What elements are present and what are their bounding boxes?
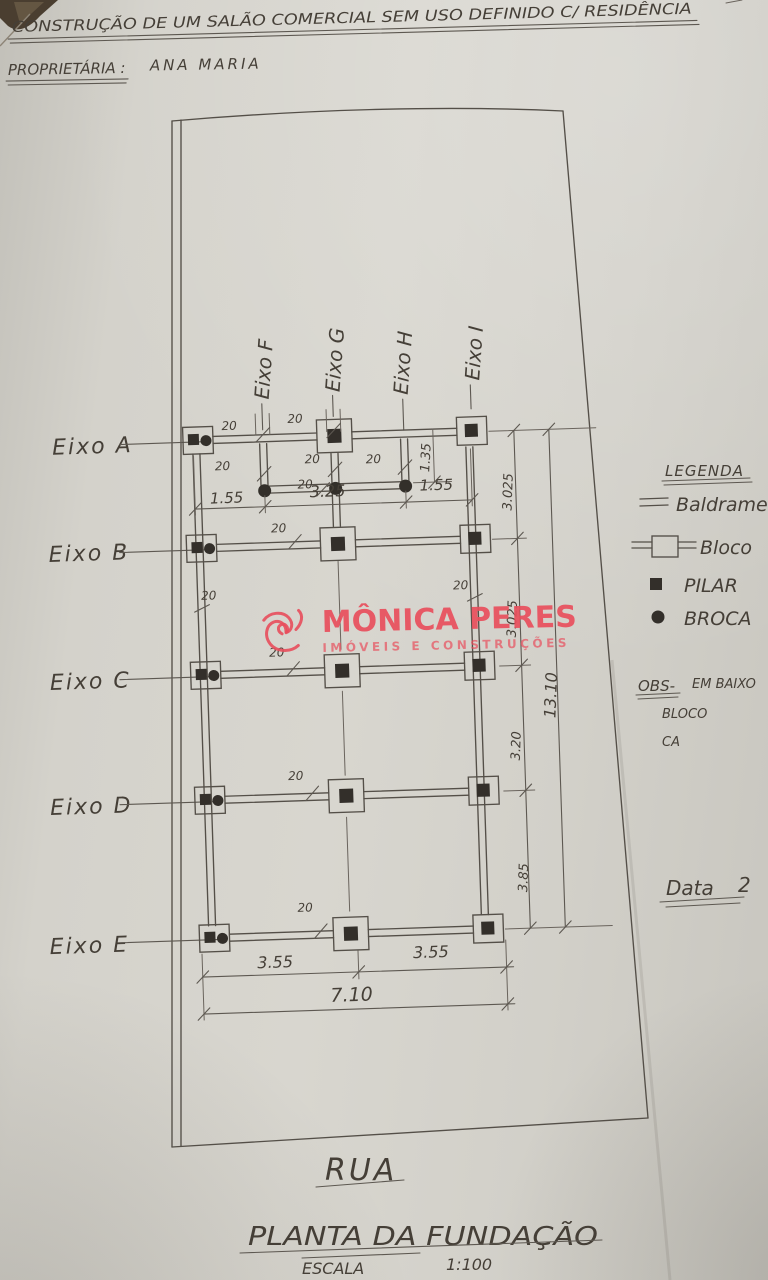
column-axis-labels: Eixo F Eixo G Eixo H Eixo I <box>247 321 491 435</box>
legend-label: PILAR <box>684 575 738 597</box>
broca-icon <box>217 933 228 944</box>
pilar-icon <box>200 794 211 805</box>
broca-icon <box>204 543 215 554</box>
bloco-symbol-icon <box>632 536 696 557</box>
dim-label: 20 <box>304 452 320 467</box>
pilar-icon <box>344 926 358 940</box>
dim-label: 20 <box>287 411 303 426</box>
paper-crease <box>612 660 670 1280</box>
pilar-icon <box>468 532 481 545</box>
broca-icon <box>212 795 223 806</box>
dim-label: 1.35 <box>418 443 435 473</box>
bottom-dimension-lines: 3.55 3.55 7.10 <box>196 940 515 1020</box>
dim-label: 7.10 <box>330 983 373 1006</box>
axis-label: Eixo H <box>389 330 417 395</box>
sheet-title-block: PLANTA DA FUNDAÇÃO ESCALA 1:100 <box>240 1220 602 1278</box>
foundation-plan-drawing: CONSTRUÇÃO DE UM SALÃO COMERCIAL SEM USO… <box>0 0 768 1280</box>
dim-label: 20 <box>365 452 381 467</box>
obs-line: EM BAIXO <box>692 677 756 692</box>
corner-mark <box>726 0 742 3</box>
dim-label: 20 <box>201 588 217 603</box>
scale-value: 1:100 <box>446 1255 492 1274</box>
date-value: 2 <box>738 873 751 897</box>
foundation-plan: Eixo A Eixo B Eixo C Eixo D Eixo E Eixo … <box>29 318 615 1025</box>
broca-icon <box>208 670 219 681</box>
date-label: Data <box>666 876 714 900</box>
street-label-block: RUA <box>316 1153 404 1188</box>
dim-label: 20 <box>297 900 313 915</box>
dim-label: 3.25 <box>309 481 345 501</box>
pilar-symbol-icon <box>650 578 662 590</box>
axis-label: Eixo G <box>321 327 350 393</box>
pilar-icon <box>472 659 485 672</box>
legend: LEGENDA Baldrame Bloco PILAR BROCA <box>632 462 768 630</box>
dim-label: 1.55 <box>419 476 453 495</box>
legend-label: Bloco <box>700 537 752 559</box>
legend-label: Baldrame <box>676 494 768 516</box>
pilar-icon <box>204 932 215 943</box>
obs-line: CA <box>662 735 680 750</box>
street-label: RUA <box>325 1153 397 1188</box>
dim-label: 20 <box>271 521 287 536</box>
pilar-icon <box>339 788 353 802</box>
legend-label: BROCA <box>684 608 751 630</box>
axis-label: Eixo B <box>48 540 129 568</box>
axis-label: Eixo F <box>250 338 278 400</box>
dim-label: 20 <box>269 645 285 660</box>
right-dimension-lines: 3.025 3.025 3.20 3.85 13.10 <box>489 422 613 935</box>
drawing-header: CONSTRUÇÃO DE UM SALÃO COMERCIAL SEM USO… <box>8 0 699 43</box>
baldrame-symbol-icon <box>640 498 668 506</box>
axis-label: Eixo A <box>52 433 133 461</box>
top-dimension-line: 1.55 3.25 1.55 <box>188 447 479 516</box>
dim-label: 20 <box>288 769 304 784</box>
axis-label: Eixo E <box>49 933 129 961</box>
pilar-icon <box>481 921 494 934</box>
pilar-icon <box>335 664 349 678</box>
legend-item-broca: BROCA <box>652 608 752 630</box>
pilar-icon <box>188 434 199 445</box>
dim-label: 13.10 <box>540 672 561 718</box>
dim-label: 1.55 <box>210 488 244 507</box>
obs-label: OBS- <box>638 677 675 695</box>
dim-label: 3.025 <box>500 473 516 511</box>
sheet-title: PLANTA DA FUNDAÇÃO <box>248 1220 598 1252</box>
row-axis-labels: Eixo A Eixo B Eixo C Eixo D Eixo E <box>33 431 225 961</box>
legend-item-pilar: PILAR <box>650 575 738 597</box>
owner-name: ANA MARIA <box>149 55 262 75</box>
pilar-icon <box>331 537 345 551</box>
dim-label: 20 <box>453 578 469 593</box>
broca-symbol-icon <box>652 611 665 624</box>
dim-label: 20 <box>221 419 237 434</box>
pilar-icon <box>196 669 207 680</box>
axis-label: Eixo D <box>50 793 133 821</box>
legend-item-bloco: Bloco <box>632 536 752 559</box>
date-block: Data 2 <box>660 873 751 907</box>
broca-icon <box>200 435 211 446</box>
legend-item-baldrame: Baldrame <box>640 494 768 516</box>
lot-boundary <box>172 108 648 1147</box>
pilar-icon <box>477 783 490 796</box>
dim-label: 3.55 <box>257 952 293 972</box>
axis-label: Eixo I <box>460 325 488 381</box>
notes: OBS- EM BAIXO BLOCO CA <box>636 677 756 750</box>
obs-line: BLOCO <box>662 707 707 722</box>
dim-label: 20 <box>215 459 231 474</box>
scale-label: ESCALA <box>302 1259 364 1278</box>
drawing-title-line: CONSTRUÇÃO DE UM SALÃO COMERCIAL SEM USO… <box>12 0 692 36</box>
legend-title: LEGENDA <box>665 462 744 480</box>
dim-label: 3.025 <box>505 600 521 638</box>
pilar-icon <box>465 424 478 437</box>
scanned-blueprint-page: CONSTRUÇÃO DE UM SALÃO COMERCIAL SEM USO… <box>0 0 768 1280</box>
owner-label: PROPRIETÁRIA : <box>8 58 126 79</box>
dim-label: 3.20 <box>509 731 525 760</box>
axis-label: Eixo C <box>50 668 132 696</box>
owner-line: PROPRIETÁRIA : ANA MARIA <box>6 55 262 85</box>
pilar-icon <box>191 542 202 553</box>
dim-label: 3.55 <box>413 942 449 962</box>
dim-label: 3.85 <box>516 863 532 892</box>
